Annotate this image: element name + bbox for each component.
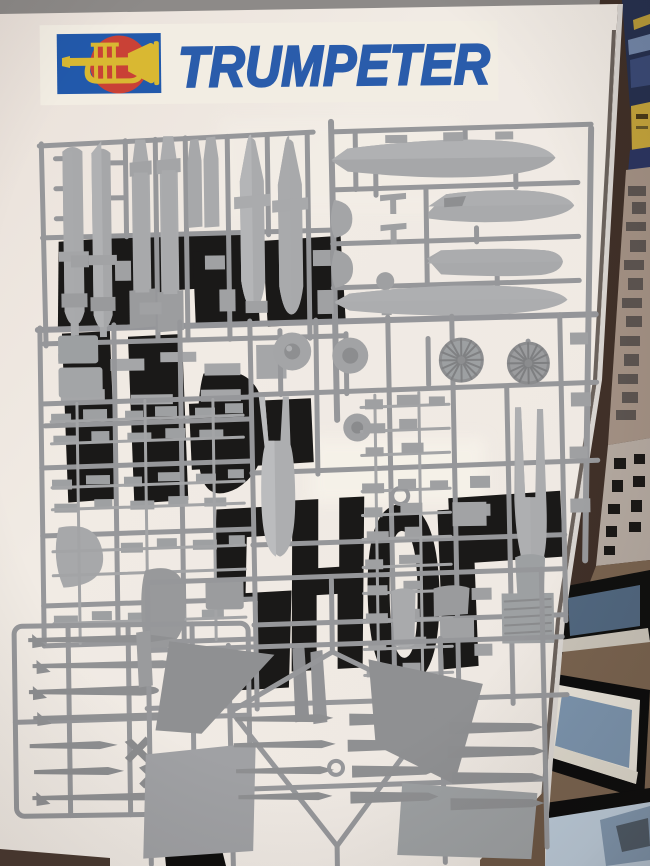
svg-text:TRUMPETER: TRUMPETER — [178, 33, 491, 100]
